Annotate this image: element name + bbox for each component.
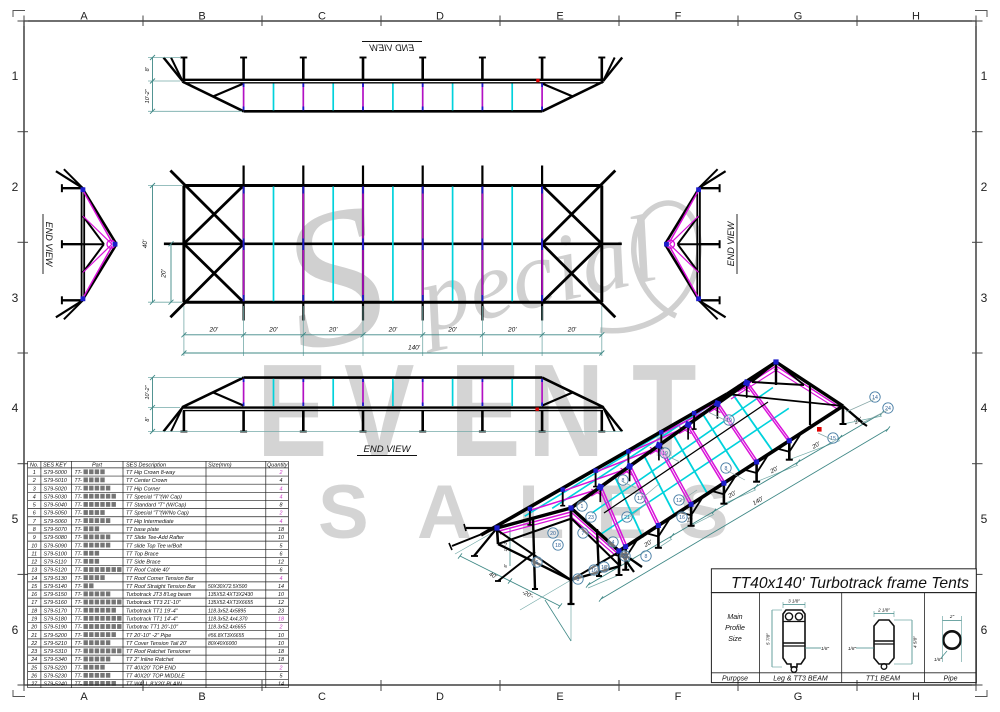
svg-text:4: 4 — [280, 486, 283, 492]
svg-text:Leg & TT3 BEAM: Leg & TT3 BEAM — [773, 676, 828, 683]
svg-text:4 5/8": 4 5/8" — [913, 636, 918, 648]
svg-text:21: 21 — [624, 515, 630, 521]
svg-text:5: 5 — [981, 512, 988, 526]
svg-text:S79-5000: S79-5000 — [44, 470, 67, 476]
svg-text:22: 22 — [622, 554, 628, 560]
svg-text:B: B — [198, 691, 205, 703]
svg-text:TT-: TT- — [75, 608, 83, 614]
svg-text:8': 8' — [503, 564, 508, 567]
svg-text:S79-5090: S79-5090 — [44, 543, 67, 549]
svg-text:H: H — [912, 691, 920, 703]
svg-text:12: 12 — [278, 600, 284, 606]
svg-text:80X40X6000: 80X40X6000 — [208, 641, 237, 647]
svg-text:F: F — [675, 11, 682, 23]
svg-text:S79-5070: S79-5070 — [44, 527, 67, 533]
svg-text:S79-5040: S79-5040 — [44, 503, 67, 509]
svg-text:20': 20' — [447, 327, 457, 334]
svg-text:14: 14 — [31, 576, 37, 582]
svg-text:20': 20' — [567, 327, 577, 334]
svg-text:5 7/8": 5 7/8" — [766, 633, 771, 645]
svg-text:TT 20'-10" -2" Pipe: TT 20'-10" -2" Pipe — [126, 633, 171, 639]
svg-text:4: 4 — [280, 478, 283, 484]
svg-text:1: 1 — [581, 504, 584, 510]
svg-text:S79-5050: S79-5050 — [44, 511, 67, 517]
svg-text:140': 140' — [408, 345, 421, 352]
svg-text:TT WALL,8'X20' PLAIN: TT WALL,8'X20' PLAIN — [126, 682, 182, 688]
svg-text:TT-: TT- — [75, 657, 83, 663]
svg-text:14: 14 — [278, 584, 284, 590]
svg-text:118.3x52.4x4,370: 118.3x52.4x4,370 — [208, 617, 248, 623]
svg-text:20': 20' — [388, 327, 398, 334]
svg-text:TT Slide Tee-Add Rafter: TT Slide Tee-Add Rafter — [126, 535, 184, 541]
svg-text:TT-: TT- — [75, 527, 83, 533]
svg-text:15: 15 — [31, 584, 38, 590]
svg-text:TT40x140' Turbotrack frame Ten: TT40x140' Turbotrack frame Tents — [731, 575, 969, 592]
svg-text:5: 5 — [12, 512, 19, 526]
svg-text:4: 4 — [33, 494, 36, 500]
svg-text:TT-: TT- — [75, 478, 83, 484]
svg-text:50X30X72.5X500: 50X30X72.5X500 — [208, 584, 247, 590]
svg-text:3 1/8": 3 1/8" — [788, 599, 800, 604]
svg-text:Size(mm): Size(mm) — [208, 463, 232, 469]
svg-text:3: 3 — [12, 291, 19, 305]
svg-text:7: 7 — [582, 531, 585, 537]
svg-text:6: 6 — [280, 568, 283, 574]
svg-text:18: 18 — [31, 608, 37, 614]
svg-text:TT Roof Corner Tension Bar: TT Roof Corner Tension Bar — [126, 576, 194, 582]
svg-text:TT-: TT- — [75, 560, 83, 566]
svg-text:H: H — [912, 11, 920, 23]
svg-text:F: F — [675, 691, 682, 703]
svg-text:TT1 BEAM: TT1 BEAM — [866, 676, 900, 683]
svg-text:No.: No. — [30, 463, 39, 469]
svg-text:6: 6 — [12, 623, 19, 637]
svg-text:TT-: TT- — [75, 641, 83, 647]
svg-text:2": 2" — [949, 614, 955, 619]
svg-text:S79-5310: S79-5310 — [44, 649, 67, 655]
svg-text:Size: Size — [728, 636, 742, 643]
svg-text:17: 17 — [31, 600, 38, 606]
svg-text:118.3x52.4x5895: 118.3x52.4x5895 — [208, 608, 246, 614]
svg-text:S: S — [318, 470, 369, 555]
svg-text:S79-5160: S79-5160 — [44, 600, 67, 606]
svg-text:END VIEW: END VIEW — [368, 43, 414, 53]
svg-text:10'-2": 10'-2" — [145, 384, 151, 399]
svg-text:6: 6 — [33, 511, 36, 517]
svg-text:20': 20' — [161, 269, 168, 279]
svg-text:TT-: TT- — [75, 584, 83, 590]
svg-text:40': 40' — [142, 239, 149, 248]
svg-text:TT Hip Crown 8-way: TT Hip Crown 8-way — [126, 470, 175, 476]
svg-text:TT-: TT- — [75, 682, 83, 688]
svg-text:12: 12 — [31, 560, 37, 566]
svg-text:6: 6 — [981, 623, 988, 637]
svg-text:TT Special "T"(W/ Cap): TT Special "T"(W/ Cap) — [126, 494, 182, 500]
svg-text:118.3x52.4x6655: 118.3x52.4x6655 — [208, 625, 246, 631]
svg-text:TT-: TT- — [75, 535, 83, 541]
svg-text:2: 2 — [279, 665, 283, 671]
svg-text:S79-5170: S79-5170 — [44, 608, 67, 614]
svg-text:E: E — [556, 11, 563, 23]
svg-text:3: 3 — [981, 291, 988, 305]
svg-text:16: 16 — [591, 568, 597, 574]
svg-text:2: 2 — [32, 478, 36, 484]
svg-text:4: 4 — [612, 540, 615, 546]
svg-text:4: 4 — [280, 494, 283, 500]
svg-text:TT-: TT- — [75, 519, 83, 525]
svg-text:S: S — [678, 470, 729, 555]
svg-text:S79-5030: S79-5030 — [44, 494, 67, 500]
svg-text:TT Roof Cable 40': TT Roof Cable 40' — [126, 568, 171, 574]
svg-text:2: 2 — [981, 180, 988, 194]
svg-text:Turbotrack TT1 19'-4": Turbotrack TT1 19'-4" — [126, 608, 179, 614]
svg-text:17: 17 — [637, 496, 643, 502]
svg-text:END VIEW: END VIEW — [364, 444, 412, 455]
svg-text:2: 2 — [279, 470, 283, 476]
svg-text:S79-5210: S79-5210 — [44, 641, 67, 647]
svg-text:20': 20' — [268, 327, 278, 334]
svg-text:TT-: TT- — [75, 568, 83, 574]
svg-text:C: C — [318, 11, 326, 23]
svg-text:4: 4 — [981, 401, 988, 415]
svg-text:TT-: TT- — [75, 633, 83, 639]
svg-text:Turbotrack JT3 8'Leg beam: Turbotrack JT3 8'Leg beam — [126, 592, 192, 598]
svg-text:11: 11 — [31, 551, 37, 557]
svg-text:20': 20' — [209, 327, 219, 334]
svg-text:19: 19 — [31, 617, 37, 623]
svg-text:TT Special "T"(W/No Cap): TT Special "T"(W/No Cap) — [126, 511, 189, 517]
svg-text:27: 27 — [30, 682, 38, 688]
svg-text:16: 16 — [31, 592, 37, 598]
svg-text:TT-: TT- — [75, 576, 83, 582]
svg-text:A: A — [80, 691, 88, 703]
svg-text:S79-5190: S79-5190 — [44, 625, 67, 631]
svg-text:S79-5110: S79-5110 — [44, 560, 67, 566]
svg-text:23: 23 — [277, 608, 284, 614]
svg-text:Part: Part — [92, 463, 103, 469]
svg-text:TT-: TT- — [75, 470, 83, 476]
svg-text:TT-: TT- — [75, 600, 83, 606]
svg-text:2: 2 — [279, 625, 283, 631]
svg-text:26: 26 — [30, 674, 37, 680]
svg-text:8: 8 — [645, 554, 648, 560]
svg-text:TT Standard "T" (W/Cap): TT Standard "T" (W/Cap) — [126, 503, 186, 509]
svg-text:20: 20 — [550, 531, 556, 537]
svg-text:TT base plate: TT base plate — [126, 527, 159, 533]
svg-text:S79-5200: S79-5200 — [44, 633, 67, 639]
svg-text:1: 1 — [12, 69, 19, 83]
svg-text:12: 12 — [278, 560, 284, 566]
svg-text:Turbotrack TT3 21'-10": Turbotrack TT3 21'-10" — [126, 600, 182, 606]
svg-text:S79-5100: S79-5100 — [44, 551, 67, 557]
svg-text:6: 6 — [280, 551, 283, 557]
svg-text:TT 40X20' TOP END: TT 40X20' TOP END — [126, 665, 176, 671]
svg-text:18: 18 — [278, 617, 284, 623]
svg-text:TT-: TT- — [75, 649, 83, 655]
svg-text:TT Cover Tension Tail 20': TT Cover Tension Tail 20' — [126, 641, 188, 647]
svg-text:9: 9 — [33, 535, 36, 541]
svg-text:2: 2 — [12, 180, 19, 194]
svg-text:13: 13 — [31, 568, 37, 574]
svg-text:TT-: TT- — [75, 503, 83, 509]
svg-text:Quantity: Quantity — [267, 463, 289, 469]
svg-text:SES Description: SES Description — [126, 463, 166, 469]
svg-text:14: 14 — [278, 682, 284, 688]
svg-text:18: 18 — [278, 657, 284, 663]
svg-text:SES KEY: SES KEY — [43, 463, 67, 469]
svg-text:TT 40X20' TOP MIDDLE: TT 40X20' TOP MIDDLE — [126, 674, 185, 680]
svg-text:3: 3 — [33, 486, 36, 492]
svg-text:24: 24 — [30, 657, 37, 663]
svg-text:C: C — [318, 691, 326, 703]
svg-text:S79-5220: S79-5220 — [44, 665, 67, 671]
svg-text:S79-5150: S79-5150 — [44, 592, 67, 598]
svg-text:20': 20' — [507, 327, 517, 334]
svg-text:S79-5140: S79-5140 — [44, 584, 67, 590]
svg-text:S79-5010: S79-5010 — [44, 478, 67, 484]
svg-text:Pipe: Pipe — [943, 676, 957, 683]
svg-text:#56.8XT3X6655: #56.8XT3X6655 — [208, 633, 244, 639]
svg-text:S79-5080: S79-5080 — [44, 535, 67, 541]
svg-text:G: G — [794, 691, 803, 703]
svg-text:135X52.4XT3X6655: 135X52.4XT3X6655 — [208, 600, 253, 606]
svg-text:10: 10 — [278, 641, 284, 647]
svg-text:20: 20 — [30, 625, 37, 631]
svg-text:TT-: TT- — [75, 511, 83, 517]
svg-text:S79-5230: S79-5230 — [44, 674, 67, 680]
svg-text:Profile: Profile — [725, 625, 745, 632]
svg-text:1/8": 1/8" — [848, 646, 856, 651]
svg-text:1/8": 1/8" — [821, 646, 829, 651]
svg-text:10'-2": 10'-2" — [145, 88, 151, 103]
svg-text:16: 16 — [679, 515, 685, 521]
svg-text:21: 21 — [30, 633, 37, 639]
svg-text:135X52.4XT3X2430: 135X52.4XT3X2430 — [208, 592, 253, 598]
svg-text:TT-: TT- — [75, 617, 83, 623]
svg-text:23: 23 — [30, 649, 37, 655]
svg-text:TT-: TT- — [75, 592, 83, 598]
svg-text:1: 1 — [33, 470, 36, 476]
svg-text:TT slide Top Tee w/Bolt: TT slide Top Tee w/Bolt — [126, 543, 182, 549]
svg-text:TT Hip Intermediate: TT Hip Intermediate — [126, 519, 174, 525]
svg-text:S79-5060: S79-5060 — [44, 519, 67, 525]
svg-text:4: 4 — [12, 401, 19, 415]
svg-text:TT Hip Corner: TT Hip Corner — [126, 486, 160, 492]
svg-text:S79-5130: S79-5130 — [44, 576, 67, 582]
svg-text:TT Side Brace: TT Side Brace — [126, 560, 160, 566]
svg-text:TT Center Crown: TT Center Crown — [126, 478, 167, 484]
svg-text:S79-5020: S79-5020 — [44, 486, 67, 492]
svg-text:8: 8 — [622, 478, 625, 484]
svg-text:TT-: TT- — [75, 665, 83, 671]
svg-text:18: 18 — [278, 649, 284, 655]
svg-text:4: 4 — [280, 519, 283, 525]
svg-text:TT Roof Straight Tension Bar: TT Roof Straight Tension Bar — [126, 584, 196, 590]
svg-text:6: 6 — [536, 560, 539, 566]
svg-text:D: D — [436, 691, 444, 703]
svg-text:8: 8 — [33, 527, 36, 533]
svg-text:B: B — [198, 11, 205, 23]
svg-text:10: 10 — [278, 633, 284, 639]
svg-text:S79-5180: S79-5180 — [44, 617, 67, 623]
svg-text:18: 18 — [278, 527, 284, 533]
svg-text:3: 3 — [577, 577, 580, 583]
svg-text:1: 1 — [981, 69, 988, 83]
svg-text:TT-: TT- — [75, 625, 83, 631]
svg-text:TT-: TT- — [75, 674, 83, 680]
svg-text:22: 22 — [30, 641, 37, 647]
svg-text:A: A — [80, 11, 88, 23]
svg-text:10: 10 — [278, 592, 284, 598]
svg-text:TT-: TT- — [75, 486, 83, 492]
svg-text:TT-: TT- — [75, 543, 83, 549]
svg-text:G: G — [794, 11, 803, 23]
svg-text:E: E — [556, 691, 563, 703]
svg-text:TT Top Brace: TT Top Brace — [126, 551, 158, 557]
svg-text:10: 10 — [278, 535, 284, 541]
svg-text:S79-5240: S79-5240 — [44, 682, 67, 688]
svg-text:Turbotrack TT1 14'-4": Turbotrack TT1 14'-4" — [126, 617, 179, 623]
svg-text:END VIEW: END VIEW — [726, 220, 736, 266]
svg-text:2: 2 — [279, 511, 283, 517]
svg-text:19: 19 — [601, 565, 607, 571]
svg-text:S79-5120: S79-5120 — [44, 568, 67, 574]
svg-text:20': 20' — [328, 327, 338, 334]
svg-text:Main: Main — [727, 614, 742, 621]
svg-text:TT 2" Inline Ratchet: TT 2" Inline Ratchet — [126, 657, 174, 663]
svg-text:18: 18 — [555, 543, 561, 549]
svg-text:TT-: TT- — [75, 551, 83, 557]
svg-text:10: 10 — [31, 543, 37, 549]
svg-text:8: 8 — [280, 503, 283, 509]
svg-text:S79-5340: S79-5340 — [44, 657, 67, 663]
svg-text:D: D — [436, 11, 444, 23]
svg-text:Turbotrac TT1 20'-10": Turbotrac TT1 20'-10" — [126, 625, 179, 631]
svg-text:2 1/8": 2 1/8" — [877, 608, 890, 613]
svg-text:23: 23 — [588, 515, 594, 521]
svg-text:4: 4 — [280, 576, 283, 582]
svg-text:25: 25 — [30, 665, 38, 671]
svg-text:END VIEW: END VIEW — [44, 222, 54, 268]
svg-text:TT-: TT- — [75, 494, 83, 500]
svg-text:Purpose: Purpose — [722, 676, 748, 683]
svg-text:TT Roof Ratchet Tensioner: TT Roof Ratchet Tensioner — [126, 649, 191, 655]
